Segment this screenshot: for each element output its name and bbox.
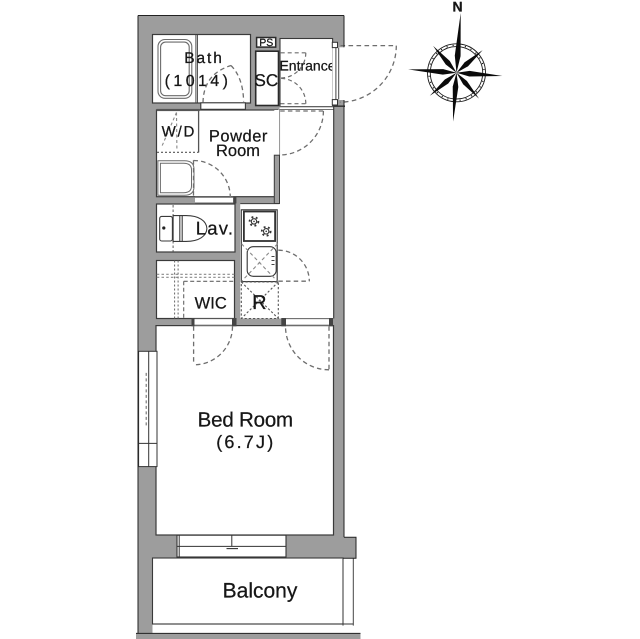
svg-text:Balcony: Balcony [223, 580, 298, 603]
svg-text:(6.7J): (6.7J) [216, 432, 275, 452]
svg-text:SC: SC [254, 71, 278, 90]
svg-text:N: N [452, 0, 462, 15]
svg-text:Room: Room [216, 142, 260, 160]
svg-text:WIC: WIC [195, 294, 227, 312]
svg-text:(1014): (1014) [165, 73, 232, 90]
svg-text:Bath: Bath [184, 50, 224, 67]
svg-text:R: R [252, 292, 266, 314]
svg-text:Bed Room: Bed Room [198, 409, 293, 432]
svg-text:W/D: W/D [162, 124, 197, 141]
svg-text:Entrance: Entrance [279, 58, 335, 74]
svg-text:PS: PS [259, 37, 273, 49]
svg-text:Lav.: Lav. [196, 218, 234, 239]
